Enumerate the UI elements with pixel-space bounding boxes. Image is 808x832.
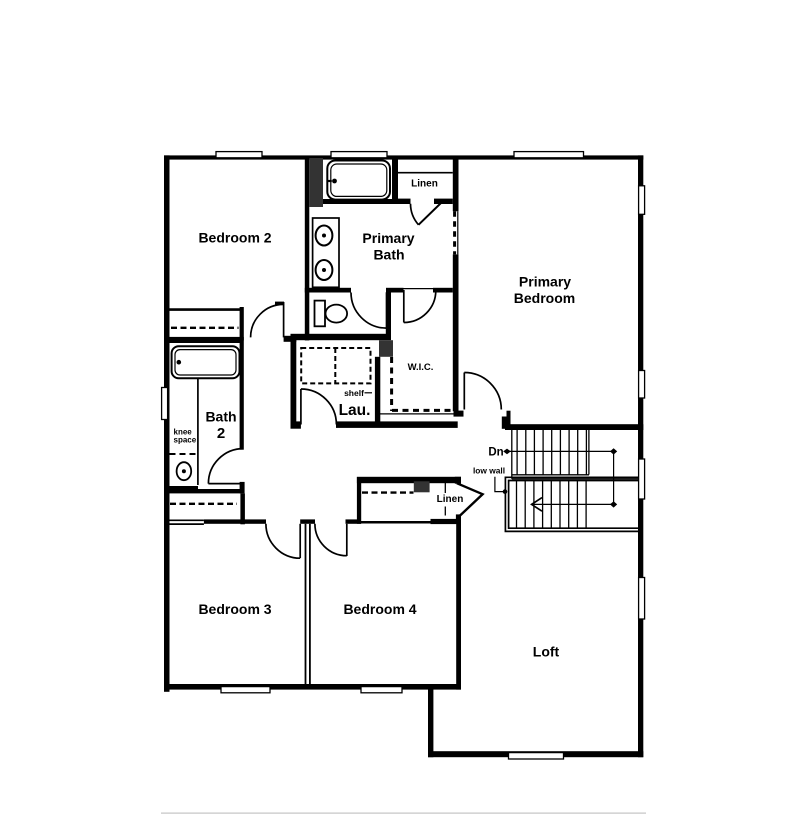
- svg-text:Dn: Dn: [488, 447, 503, 459]
- svg-text:Bedroom: Bedroom: [514, 290, 575, 306]
- svg-text:2: 2: [217, 425, 225, 442]
- svg-text:Lau.: Lau.: [339, 402, 371, 419]
- svg-text:Bath: Bath: [205, 408, 236, 424]
- svg-text:W.I.C.: W.I.C.: [408, 362, 434, 373]
- svg-text:Loft: Loft: [533, 644, 560, 660]
- svg-text:Bedroom 2: Bedroom 2: [198, 230, 271, 246]
- svg-text:Bedroom 3: Bedroom 3: [198, 601, 271, 617]
- svg-text:space: space: [174, 435, 197, 444]
- svg-text:Bedroom 4: Bedroom 4: [343, 601, 416, 617]
- svg-text:Primary: Primary: [362, 230, 414, 246]
- svg-text:Linen: Linen: [437, 494, 464, 505]
- svg-text:Primary: Primary: [519, 274, 571, 290]
- svg-text:Linen: Linen: [411, 179, 438, 190]
- svg-text:shelf: shelf: [344, 388, 364, 398]
- svg-text:Bath: Bath: [373, 247, 404, 263]
- svg-text:low wall: low wall: [473, 466, 505, 476]
